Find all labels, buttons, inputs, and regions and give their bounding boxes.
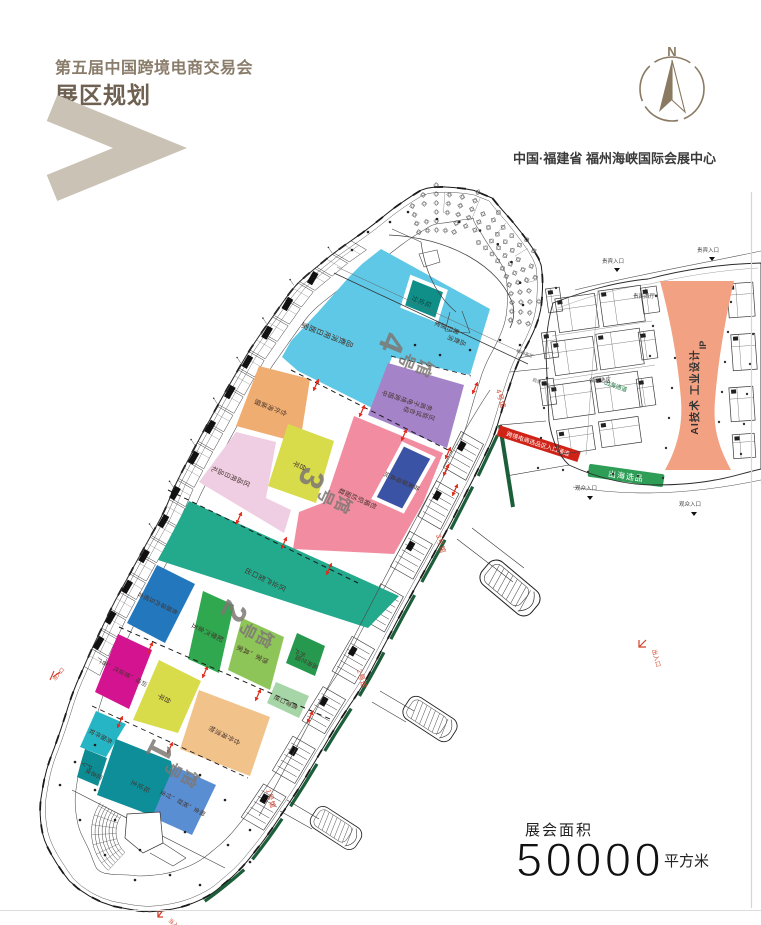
svg-text:会议选区: 会议选区 <box>589 376 612 384</box>
svg-text:当入口: 当入口 <box>167 916 185 925</box>
svg-text:AI技术 工业设计: AI技术 工业设计 <box>688 349 701 434</box>
svg-text:当入口: 当入口 <box>51 666 66 682</box>
svg-text:出入口: 出入口 <box>650 648 662 667</box>
svg-text:贵宾西厅: 贵宾西厅 <box>633 292 656 300</box>
svg-text:观众入口: 观众入口 <box>679 501 701 508</box>
svg-text:观众入口: 观众入口 <box>575 485 597 492</box>
svg-text:贵宾入口: 贵宾入口 <box>602 257 624 265</box>
svg-text:IP: IP <box>698 341 708 350</box>
svg-text:贵宾入口: 贵宾入口 <box>697 246 719 254</box>
